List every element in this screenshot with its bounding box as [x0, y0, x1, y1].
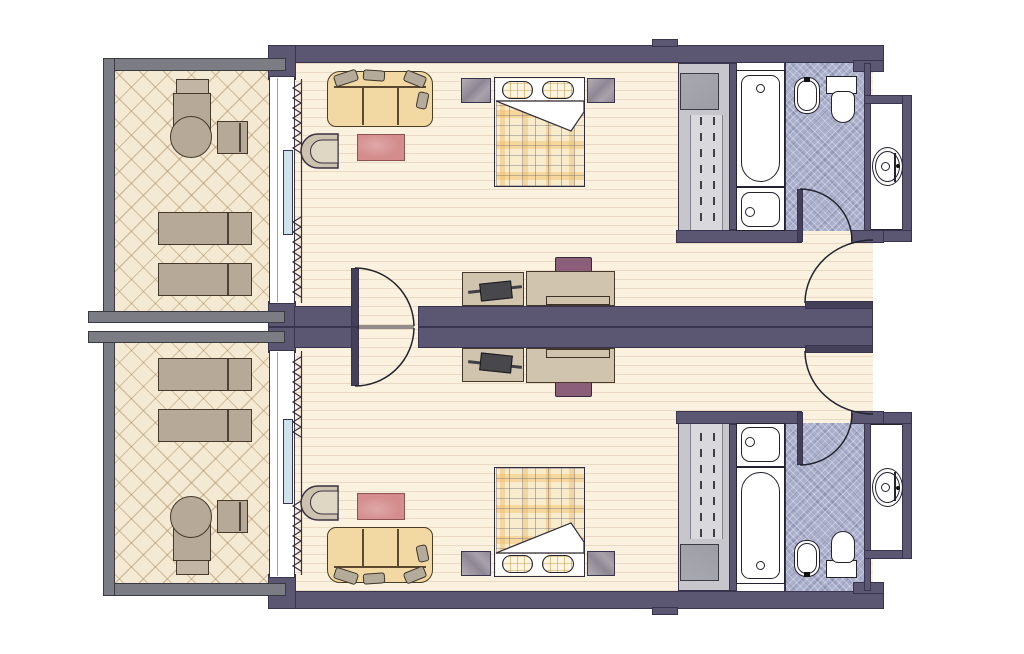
curtain	[293, 357, 301, 437]
armchair-seat	[311, 491, 339, 514]
plan-overlay	[0, 327, 1024, 654]
connecting-door-swing	[355, 268, 414, 326]
floor-plan	[0, 0, 1024, 654]
bed-sheet-fold	[496, 523, 584, 553]
entry-door-swing	[805, 351, 873, 414]
room-a	[0, 0, 1024, 327]
connecting-door-swing	[355, 328, 414, 386]
entry-door-swing	[805, 240, 873, 303]
curtain	[293, 217, 301, 297]
bathroom-door-swing	[800, 413, 852, 465]
plan-overlay	[0, 0, 1024, 327]
bathroom-door-swing	[800, 189, 852, 241]
bed-sheet-fold	[496, 101, 584, 131]
armchair-seat	[311, 140, 339, 163]
curtain	[293, 83, 301, 153]
curtain	[293, 501, 301, 571]
room-b	[0, 327, 1024, 654]
